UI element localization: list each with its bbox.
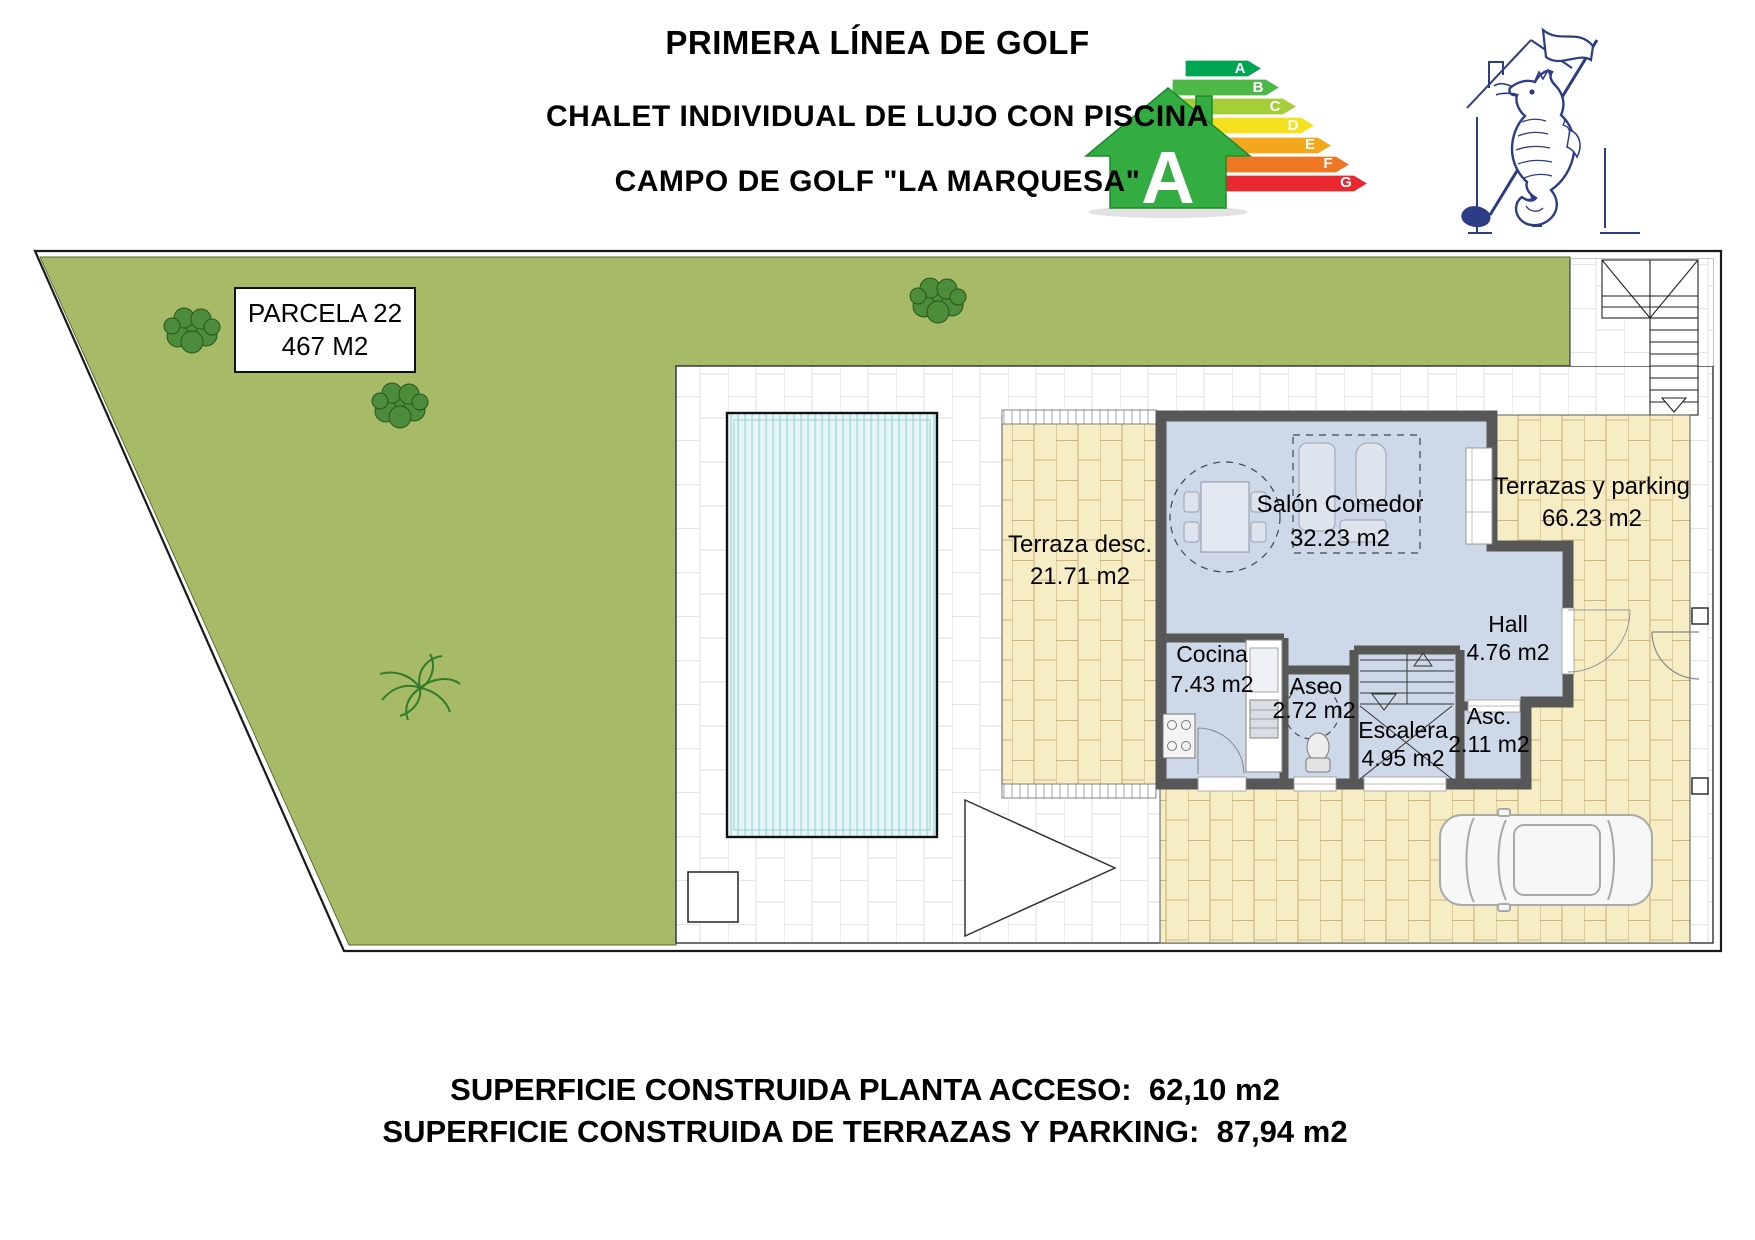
car-topview [1440, 809, 1652, 911]
pergola-beam-bottom [1002, 784, 1156, 798]
swimming-pool [727, 413, 937, 837]
paved-pad [688, 872, 738, 922]
energy-letter-a: A [1235, 60, 1246, 77]
room-label-cocina: Cocina [1176, 641, 1248, 667]
room-area-cocina: 7.43 m2 [1170, 671, 1253, 697]
title-chalet: CHALET INDIVIDUAL DE LUJO CON PISCINA [0, 100, 1755, 134]
energy-bar-b [1172, 79, 1280, 96]
energy-letter-e: E [1305, 136, 1315, 153]
footer-superficie-planta: SUPERFICIE CONSTRUIDA PLANTA ACCESO: 62,… [0, 1072, 1730, 1108]
title-campo-golf: CAMPO DE GOLF "LA MARQUESA" [0, 165, 1755, 199]
room-area-asc: 2.11 m2 [1448, 731, 1529, 757]
energy-bar-a [1185, 60, 1262, 77]
room-area-terraza: 21.71 m2 [1030, 563, 1130, 590]
room-area-terrazas: 66.23 m2 [1542, 505, 1642, 532]
room-area-salon: 32.23 m2 [1290, 525, 1390, 552]
pergola-beam-top [1002, 410, 1156, 424]
footer-superficie-terrazas: SUPERFICIE CONSTRUIDA DE TERRAZAS Y PARK… [0, 1114, 1730, 1150]
title-primera-linea: PRIMERA LÍNEA DE GOLF [0, 24, 1755, 62]
room-label-terrazas: Terrazas y parking [1494, 473, 1690, 500]
room-area-escalera: 4.95 m2 [1361, 745, 1444, 771]
terrace-desc-area [1002, 415, 1156, 788]
room-label-hall: Hall [1488, 611, 1528, 637]
room-area-aseo: 2.72 m2 [1272, 697, 1355, 723]
room-label-escalera: Escalera [1358, 717, 1448, 743]
room-area-hall: 4.76 m2 [1466, 639, 1549, 665]
room-label-aseo: Aseo [1290, 673, 1342, 699]
energy-letter-b: B [1253, 79, 1264, 96]
parcel-area: 467 M2 [282, 331, 369, 361]
room-label-salon: Salón Comedor [1257, 491, 1424, 518]
parcel-name: PARCELA 22 [248, 298, 402, 328]
plan-sheet: PARCELA 22 467 M2 [0, 0, 1755, 1240]
parcel-box: PARCELA 22 467 M2 [235, 288, 415, 372]
room-label-terraza: Terraza desc. [1008, 531, 1152, 558]
room-label-asc: Asc. [1467, 703, 1512, 729]
